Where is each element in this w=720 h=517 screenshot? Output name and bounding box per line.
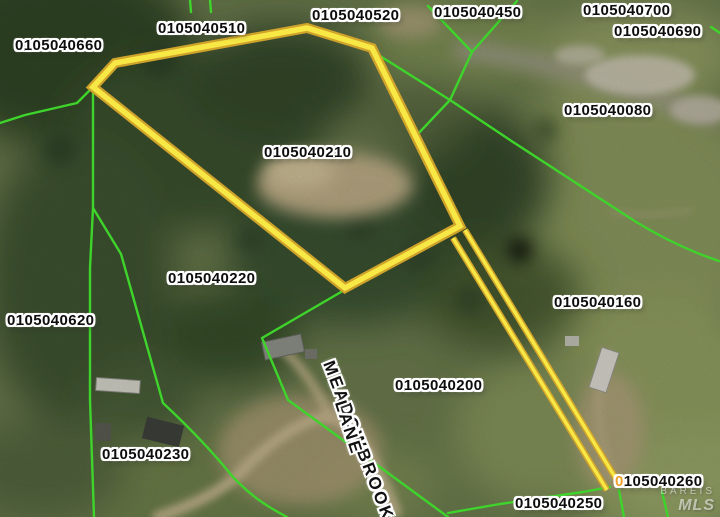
mls-watermark-mls: MLS	[660, 498, 715, 514]
parcel-label-230: 0105040230	[102, 447, 189, 464]
parcel-line	[93, 208, 287, 517]
parcel-line	[619, 490, 624, 517]
parcel-label-660: 0105040660	[15, 38, 102, 55]
parcel-label-520: 0105040520	[312, 8, 399, 25]
parcel-label-260-prefix: 0	[615, 473, 624, 490]
mls-watermark-name: BAREIS	[660, 487, 715, 497]
parcel-label-620: 0105040620	[7, 313, 94, 330]
parcel-label-700: 0105040700	[583, 3, 670, 20]
mls-watermark: BAREIS MLS	[660, 487, 715, 514]
parcel-line	[90, 87, 94, 517]
parcel-label-690: 0105040690	[614, 24, 701, 41]
parcel-label-510: 0105040510	[158, 21, 245, 38]
parcel-line	[711, 27, 720, 33]
parcel-line	[0, 87, 93, 123]
parcel-label-210: 0105040210	[264, 145, 351, 162]
parcel-label-220: 0105040220	[168, 271, 255, 288]
parcel-label-080: 0105040080	[564, 103, 651, 120]
parcel-label-450: 0105040450	[434, 5, 521, 22]
parcel-line	[210, 0, 211, 12]
parcel-map[interactable]: 0105040660 0105040510 0105040520 0105040…	[0, 0, 720, 517]
parcel-label-250: 0105040250	[515, 496, 602, 513]
parcel-line	[450, 100, 719, 261]
parcel-line	[190, 0, 191, 12]
parcel-label-160: 0105040160	[554, 295, 641, 312]
parcel-label-200: 0105040200	[395, 378, 482, 395]
parcel-line	[416, 52, 472, 136]
road-spur-core	[453, 238, 607, 490]
road-spur-core	[465, 230, 618, 482]
